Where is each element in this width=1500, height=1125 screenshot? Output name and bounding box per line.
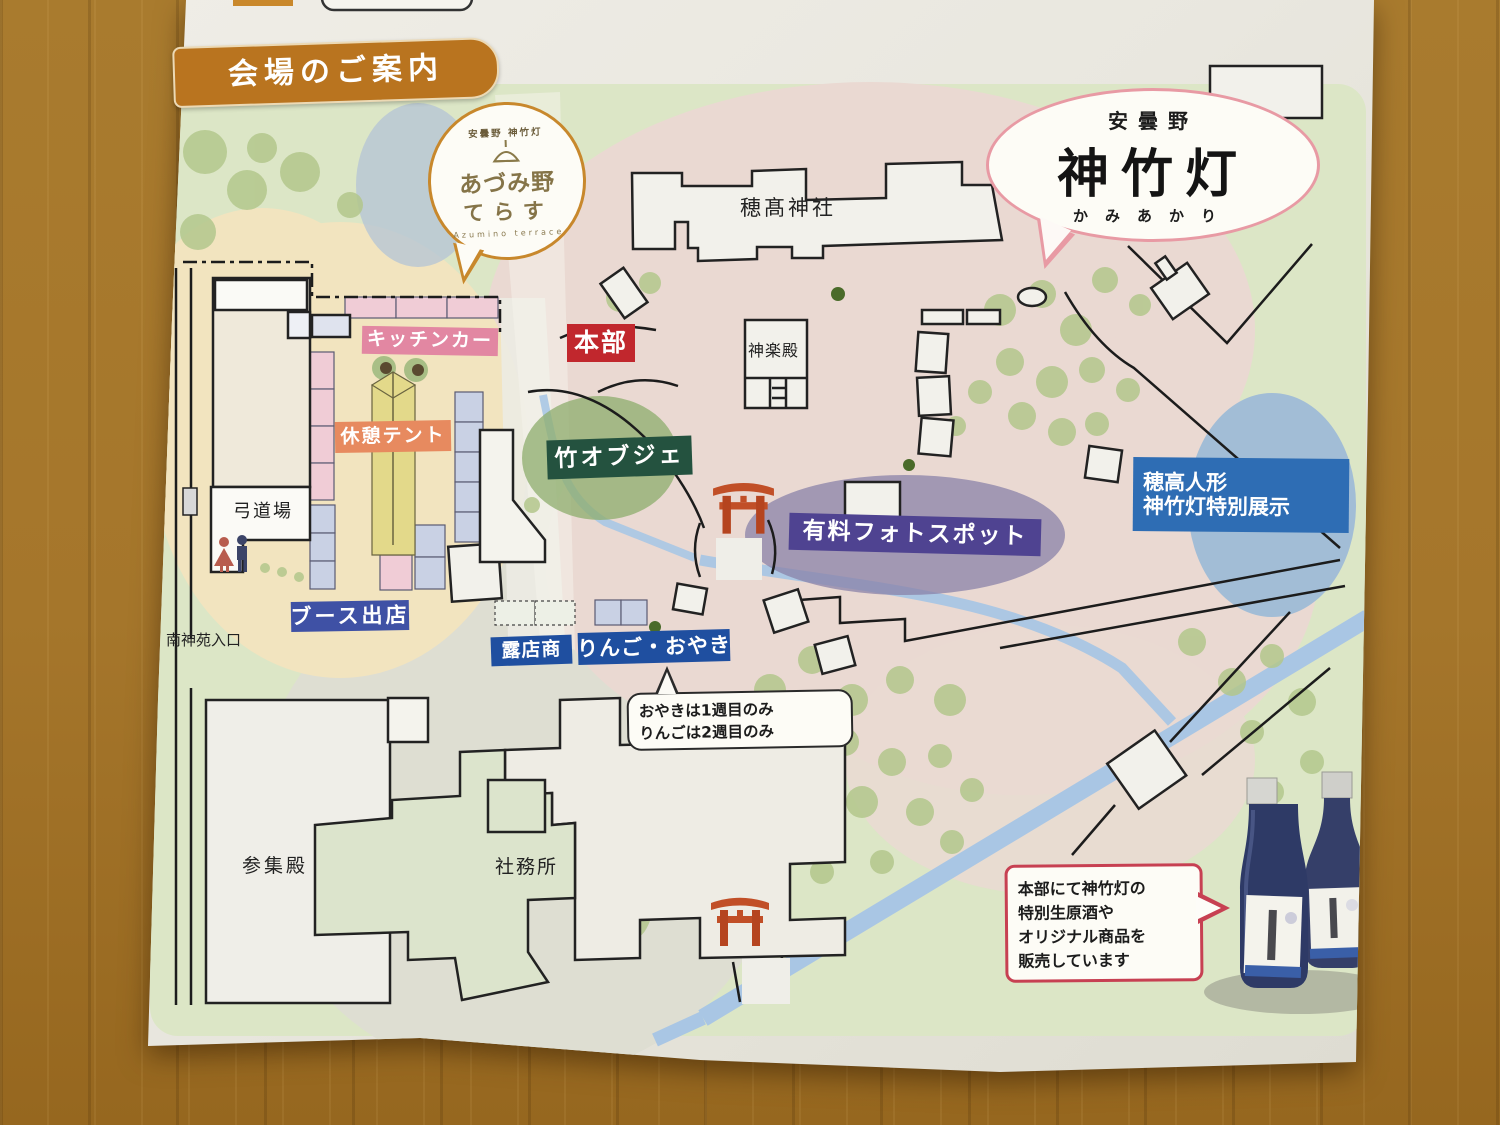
kamiakari-region: 安曇野	[1108, 105, 1198, 134]
label-kyudojo: 弓道場	[233, 502, 293, 523]
sales-note-bubble: 本部にて神竹灯の 特別生原酒や オリジナル商品を 販売しています	[1004, 863, 1203, 983]
label-shrine-office: 社務所	[495, 857, 558, 879]
kamiakari-reading: かみあかり	[1073, 205, 1233, 226]
terrace-arc-text: 安曇野 神竹灯	[468, 123, 543, 140]
page-title-badge: 会場のご案内	[172, 37, 500, 108]
sales-note-line1: 本部にて神竹灯の	[1018, 874, 1190, 900]
label-hotaka-shrine: 穂髙神社	[740, 196, 836, 220]
terrace-name-line2: てらす	[463, 194, 554, 227]
doll-line1: 穂高人形	[1143, 470, 1227, 495]
oyaki-note-line2: りんごは2週目のみ	[639, 718, 841, 744]
label-paid-photo-spot: 有料フォトスポット	[789, 513, 1042, 557]
sales-note-tail-fill	[1196, 896, 1221, 920]
sake-bottle-front	[1240, 778, 1308, 988]
label-booth-stalls: ブース出店	[291, 600, 410, 632]
label-apple-oyaki: りんご・おやき	[578, 629, 731, 665]
oyaki-note-tail-fill	[658, 672, 676, 694]
oyaki-note-bubble: おやきは1週目のみ りんごは2週目のみ	[627, 689, 854, 751]
kamiakari-title: 神竹灯	[1057, 132, 1249, 207]
doll-line2: 神竹灯特別展示	[1143, 494, 1290, 519]
label-kitchen-car: キッチンカー	[362, 326, 498, 356]
label-kagura-hall: 神楽殿	[748, 342, 799, 360]
label-street-vendors: 露店商	[491, 635, 573, 667]
label-bamboo-object: 竹オブジェ	[546, 435, 692, 479]
label-headquarters: 本部	[567, 324, 635, 362]
previous-panel-orange	[233, 0, 293, 6]
sales-note-line4: 販売しています	[1018, 946, 1190, 972]
photo-of-venue-map: 会場のご案内 安曇野 神竹灯 あづみ野 てらす Azumino terrace …	[0, 0, 1500, 1125]
label-sanshuden: 参集殿	[242, 856, 308, 878]
previous-panel-box	[322, 0, 472, 10]
label-south-entrance: 南神苑入口	[166, 632, 241, 649]
sales-note-line2: 特別生原酒や	[1018, 898, 1190, 924]
terrace-name-en: Azumino terrace	[453, 227, 564, 240]
terrace-tent-icon	[491, 138, 522, 163]
sales-note-line3: オリジナル商品を	[1018, 922, 1190, 948]
rest-tent-shape	[372, 372, 415, 555]
label-rest-tent: 休憩テント	[335, 420, 452, 453]
kagura-building	[745, 320, 807, 408]
label-hotaka-doll-exhibit: 穂高人形 神竹灯特別展示	[1133, 457, 1350, 533]
